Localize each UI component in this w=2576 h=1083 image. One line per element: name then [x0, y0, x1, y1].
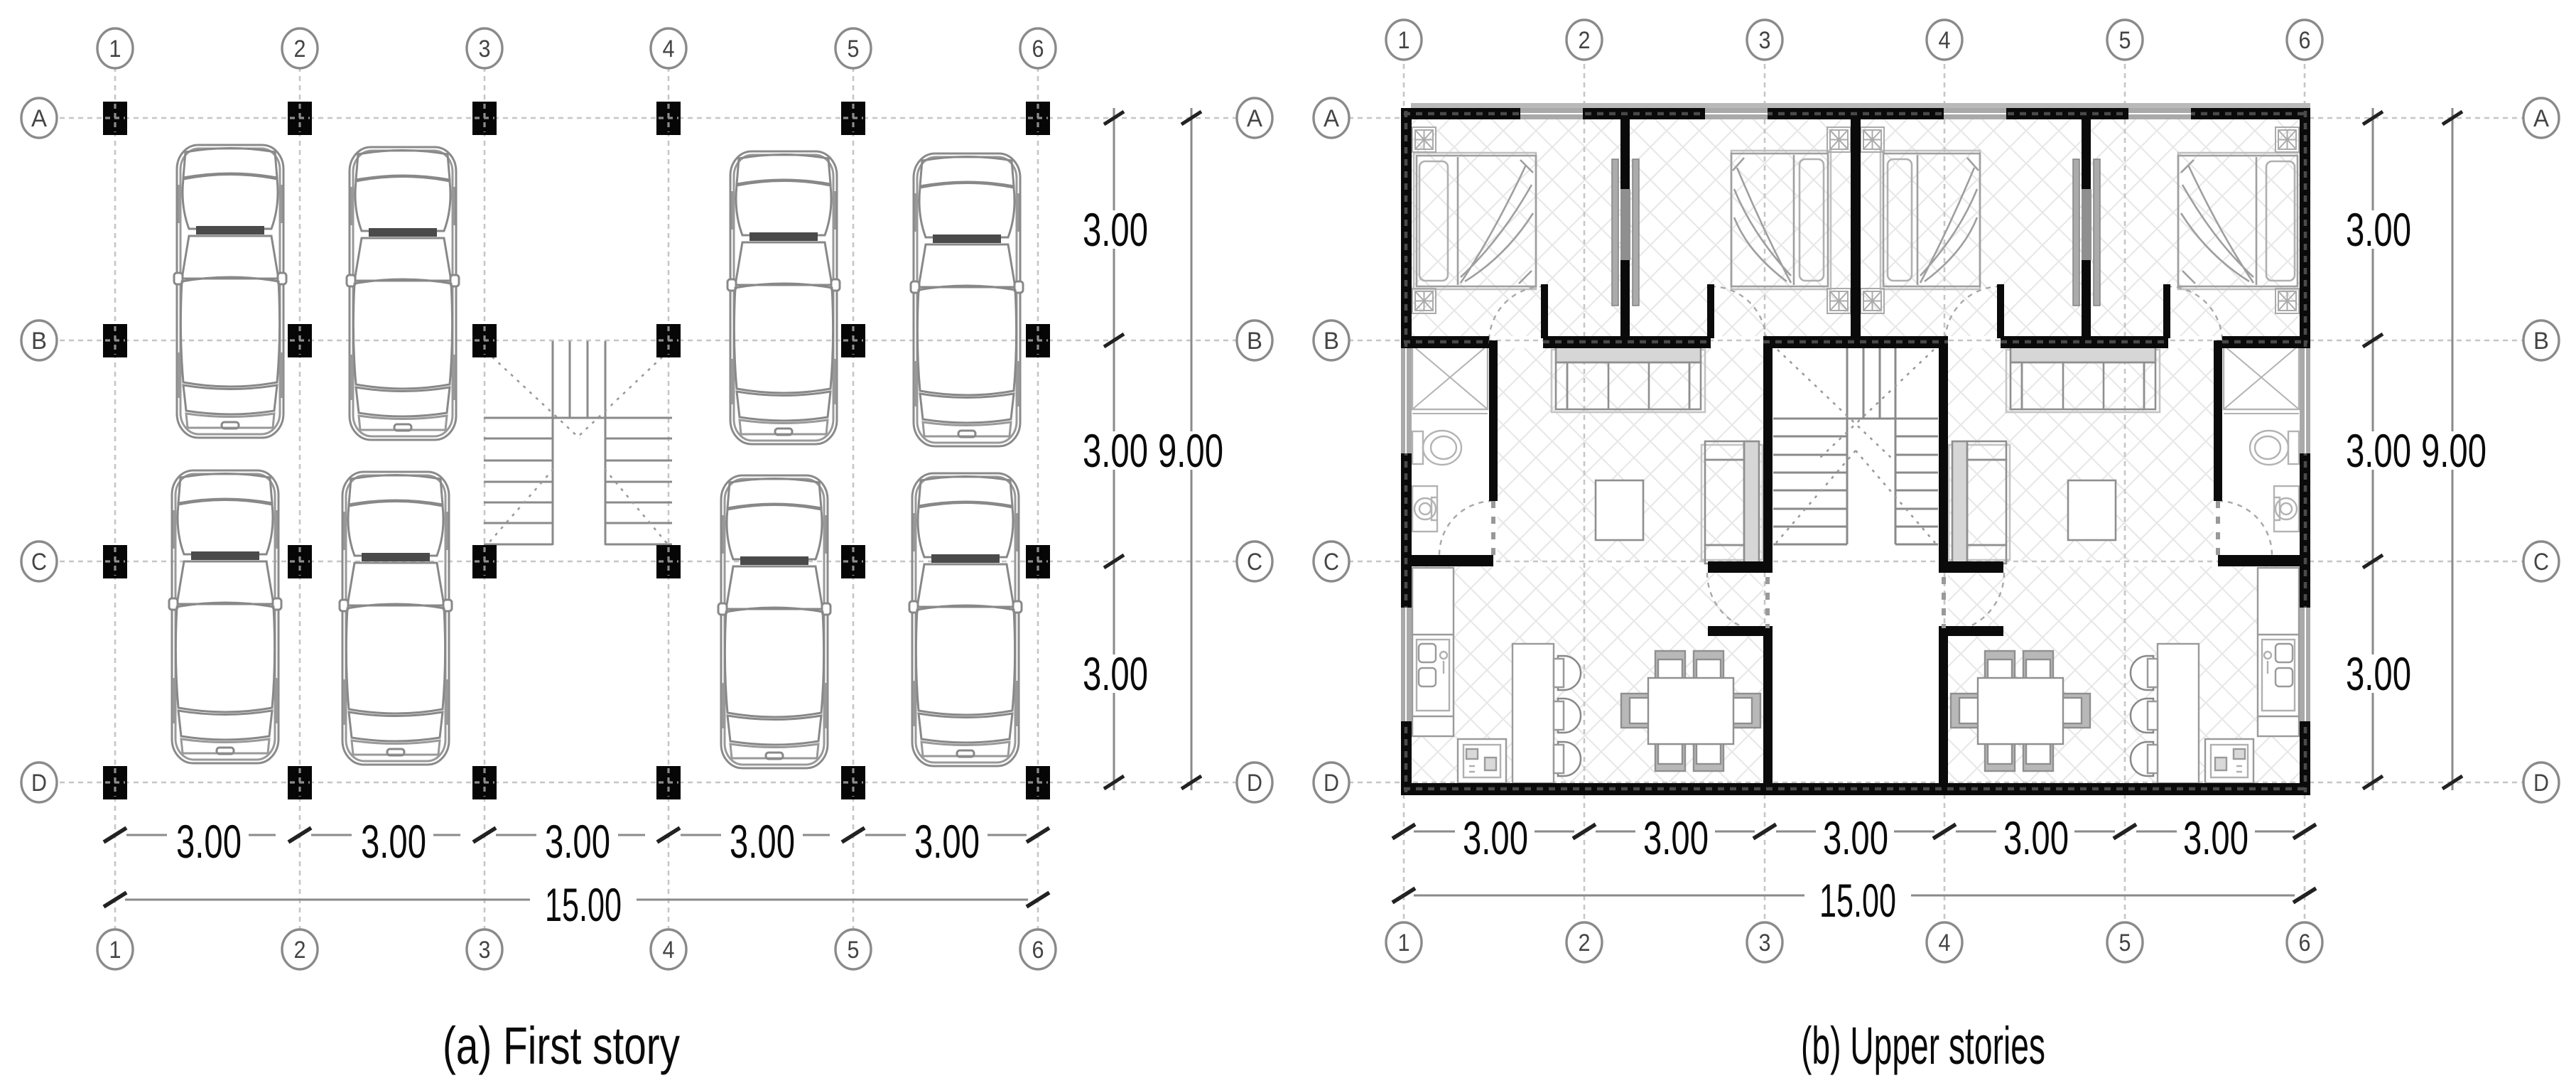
- svg-text:5: 5: [2119, 27, 2131, 54]
- svg-text:6: 6: [2299, 27, 2311, 54]
- svg-text:C: C: [2533, 549, 2549, 576]
- svg-text:3.00: 3.00: [1083, 203, 1148, 256]
- svg-text:1: 1: [109, 937, 121, 964]
- svg-text:3.00: 3.00: [1643, 812, 1709, 864]
- svg-text:6: 6: [1032, 937, 1044, 964]
- svg-text:(b) Upper stories: (b) Upper stories: [1801, 1016, 2045, 1075]
- svg-text:1: 1: [1398, 27, 1410, 54]
- svg-text:D: D: [2533, 770, 2549, 797]
- svg-text:1: 1: [1398, 930, 1410, 957]
- svg-text:D: D: [1324, 770, 1339, 797]
- svg-text:4: 4: [663, 937, 675, 964]
- svg-text:D: D: [31, 770, 47, 797]
- svg-text:1: 1: [109, 36, 121, 63]
- svg-text:4: 4: [1939, 930, 1951, 957]
- svg-text:A: A: [1247, 105, 1262, 132]
- svg-text:5: 5: [2119, 930, 2131, 957]
- svg-text:B: B: [1324, 328, 1339, 355]
- svg-text:5: 5: [848, 937, 860, 964]
- svg-text:B: B: [2533, 328, 2549, 355]
- svg-text:4: 4: [663, 36, 675, 63]
- svg-text:3.00: 3.00: [361, 815, 426, 868]
- svg-text:(a) First story: (a) First story: [443, 1016, 680, 1075]
- svg-text:3.00: 3.00: [914, 815, 980, 868]
- svg-text:3.00: 3.00: [2183, 812, 2248, 864]
- svg-text:3.00: 3.00: [545, 815, 610, 868]
- svg-text:3: 3: [479, 36, 491, 63]
- svg-text:C: C: [1247, 549, 1262, 576]
- svg-text:3.00: 3.00: [730, 815, 795, 868]
- svg-text:3.00: 3.00: [1083, 424, 1148, 477]
- svg-text:9.00: 9.00: [1158, 424, 1223, 477]
- svg-text:2: 2: [294, 937, 306, 964]
- svg-text:4: 4: [1939, 27, 1951, 54]
- svg-text:B: B: [1247, 328, 1262, 355]
- svg-text:15.00: 15.00: [545, 878, 622, 931]
- svg-text:3.00: 3.00: [176, 815, 242, 868]
- svg-text:D: D: [1247, 770, 1262, 797]
- svg-text:3.00: 3.00: [1083, 647, 1148, 700]
- svg-text:A: A: [31, 105, 47, 132]
- svg-text:6: 6: [1032, 36, 1044, 63]
- svg-text:3.00: 3.00: [2346, 424, 2411, 477]
- svg-text:A: A: [2533, 105, 2549, 132]
- svg-text:5: 5: [848, 36, 860, 63]
- svg-text:3: 3: [1759, 930, 1771, 957]
- svg-text:2: 2: [294, 36, 306, 63]
- svg-text:3.00: 3.00: [2003, 812, 2069, 864]
- svg-text:15.00: 15.00: [1819, 874, 1896, 927]
- svg-text:3.00: 3.00: [1823, 812, 1888, 864]
- svg-text:2: 2: [1579, 27, 1591, 54]
- svg-text:2: 2: [1579, 930, 1591, 957]
- svg-text:3: 3: [479, 937, 491, 964]
- svg-text:A: A: [1324, 105, 1339, 132]
- svg-text:9.00: 9.00: [2421, 424, 2486, 477]
- svg-text:6: 6: [2299, 930, 2311, 957]
- svg-text:C: C: [1324, 549, 1339, 576]
- svg-text:3.00: 3.00: [1463, 812, 1528, 864]
- svg-text:B: B: [31, 328, 47, 355]
- svg-text:3.00: 3.00: [2346, 203, 2411, 256]
- svg-text:3.00: 3.00: [2346, 647, 2411, 700]
- svg-text:3: 3: [1759, 27, 1771, 54]
- svg-text:C: C: [31, 549, 47, 576]
